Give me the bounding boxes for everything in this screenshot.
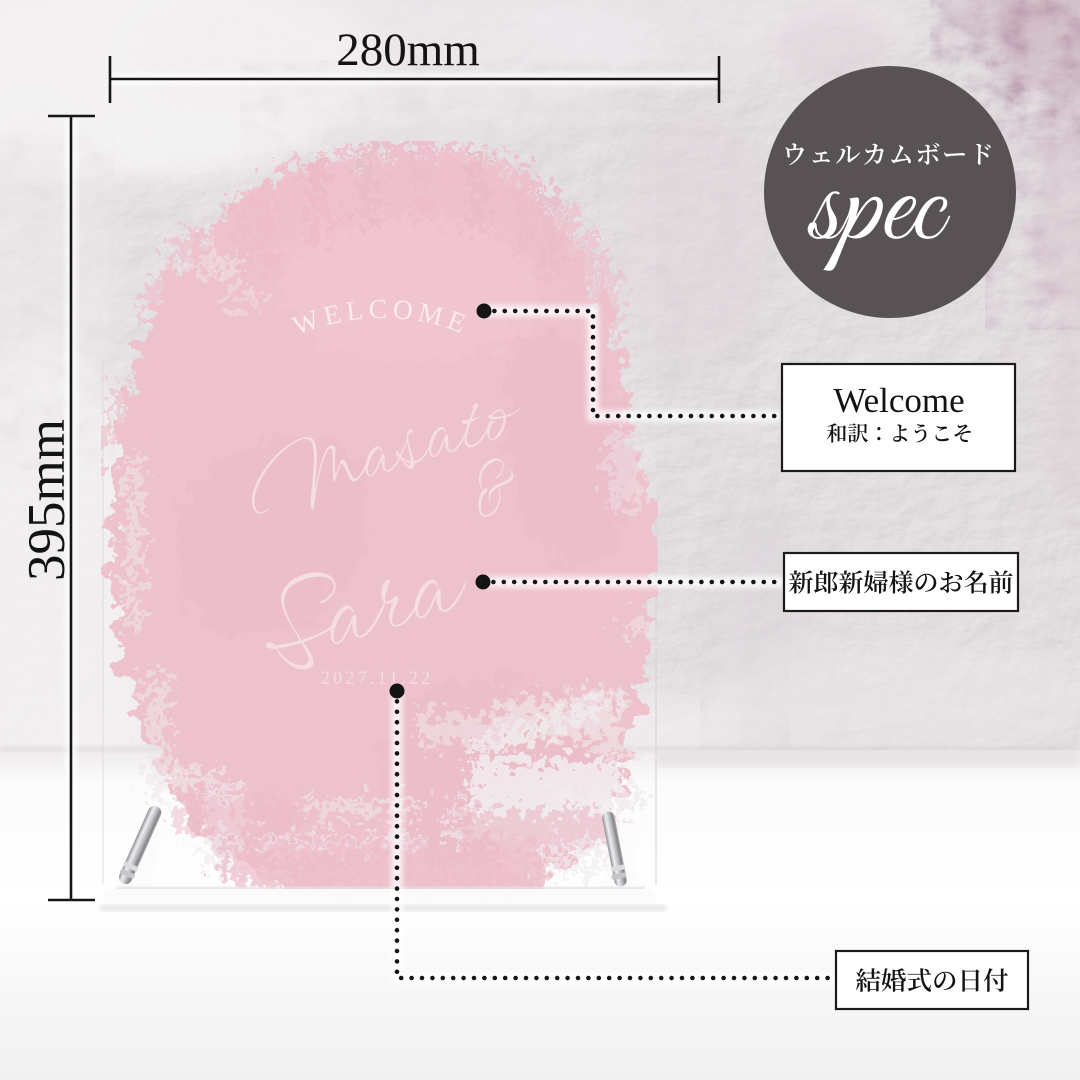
svg-text:2027.11.22: 2027.11.22 — [321, 669, 434, 689]
svg-text:Welcome: Welcome — [833, 381, 964, 420]
svg-text:280mm: 280mm — [336, 24, 480, 76]
svg-text:395mm: 395mm — [18, 419, 76, 581]
